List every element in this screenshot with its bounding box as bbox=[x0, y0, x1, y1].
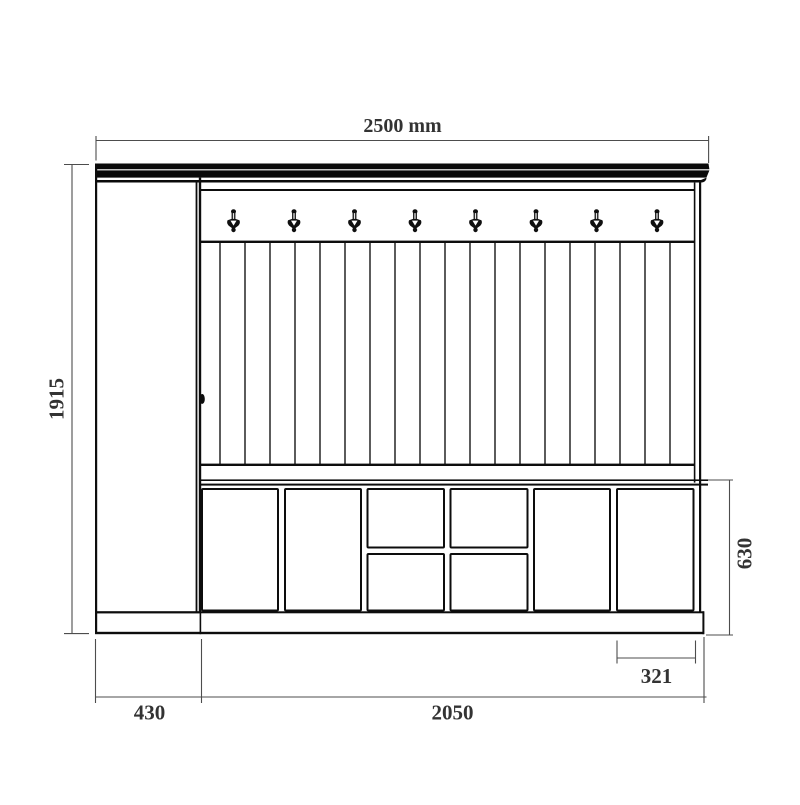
svg-text:321: 321 bbox=[641, 664, 673, 688]
svg-text:430: 430 bbox=[134, 701, 166, 725]
svg-text:2050: 2050 bbox=[432, 701, 474, 725]
svg-text:1915: 1915 bbox=[45, 378, 69, 420]
svg-text:630: 630 bbox=[733, 538, 757, 570]
svg-text:2500 mm: 2500 mm bbox=[363, 115, 442, 137]
